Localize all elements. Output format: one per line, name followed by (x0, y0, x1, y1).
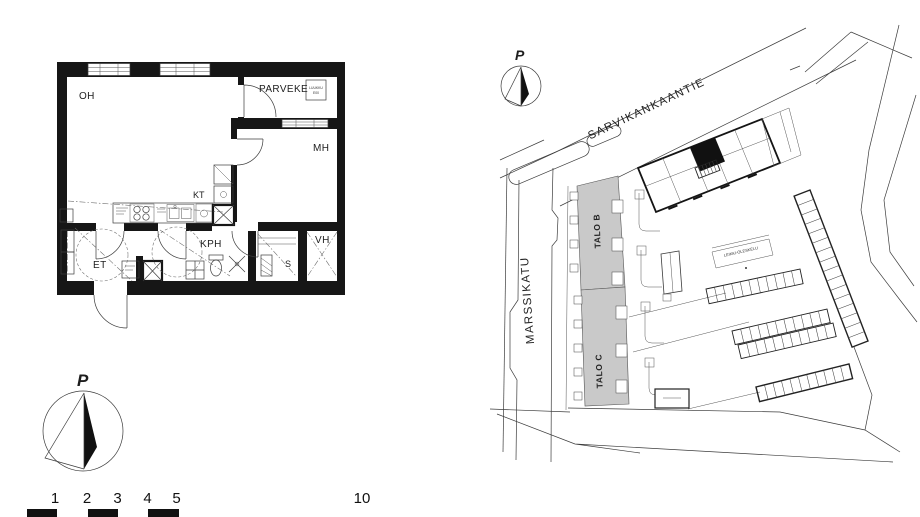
hatch-label-line2: E00 (313, 91, 319, 95)
scale-bar: 1 2 3 4 5 10 (27, 490, 370, 517)
traffic-island (506, 139, 591, 186)
street-lines (490, 25, 917, 462)
street-label-marssikatu: MARSSIKATU (519, 256, 537, 345)
floor-plan: LUUKKU E00 OH PARVEKE MH KT KPH ET S VH (57, 62, 345, 328)
scale-tick-5: 5 (172, 490, 180, 507)
hatch-label-line1: LUUKKU (309, 86, 323, 90)
scale-tick-1: 1 (51, 490, 59, 507)
room-label-kt: KT (193, 190, 205, 200)
waste-shelter (655, 389, 689, 408)
kitchen-fixtures (113, 165, 234, 225)
balcony-hatch-box: LUUKKU E00 (306, 80, 326, 100)
scale-tick-4: 4 (143, 490, 151, 507)
building-label-talo-c: TALO C (593, 354, 604, 389)
architectural-drawing-sheet: LUUKKU E00 OH PARVEKE MH KT KPH ET S VH … (0, 0, 920, 517)
shower-icon (229, 256, 245, 272)
scale-tick-2: 2 (83, 490, 91, 507)
room-label-mh: MH (313, 143, 329, 154)
compass: P (43, 371, 123, 471)
north-arrow-site: P (501, 47, 541, 106)
parking-rows (695, 160, 868, 402)
scale-bar-segments (27, 509, 179, 517)
north-arrow-needle (521, 67, 529, 106)
building-a (638, 108, 801, 212)
scale-tick-3: 3 (113, 490, 121, 507)
sauna-fixtures (258, 238, 296, 276)
compass-circle (43, 391, 123, 471)
room-label-vh: VH (315, 235, 330, 246)
building-label-talo-b: TALO B (591, 214, 602, 249)
scale-tick-10: 10 (354, 490, 371, 507)
north-label-site: P (515, 47, 525, 63)
area-label-leikki: LEIKKI-OLESKELU (723, 245, 758, 258)
compass-needle (84, 393, 97, 469)
compass-north-label: P (77, 371, 89, 390)
room-label-s: S (285, 259, 291, 269)
leikki-area: LEIKKI-OLESKELU (712, 235, 773, 269)
street-label-sarvikankaantie: SARVIKANKAANTIE (586, 76, 707, 142)
room-label-kph: KPH (200, 239, 222, 250)
site-plan: P SARVIKANKAANTIE MARSSIKATU (490, 25, 917, 462)
toilet-icon (209, 255, 223, 276)
room-label-et: ET (93, 260, 107, 271)
room-label-parveke: PARVEKE (259, 84, 308, 95)
auxiliary-buildings (655, 251, 689, 408)
drawing-svg: LUUKKU E00 OH PARVEKE MH KT KPH ET S VH … (0, 0, 920, 517)
room-label-oh: OH (79, 91, 95, 102)
